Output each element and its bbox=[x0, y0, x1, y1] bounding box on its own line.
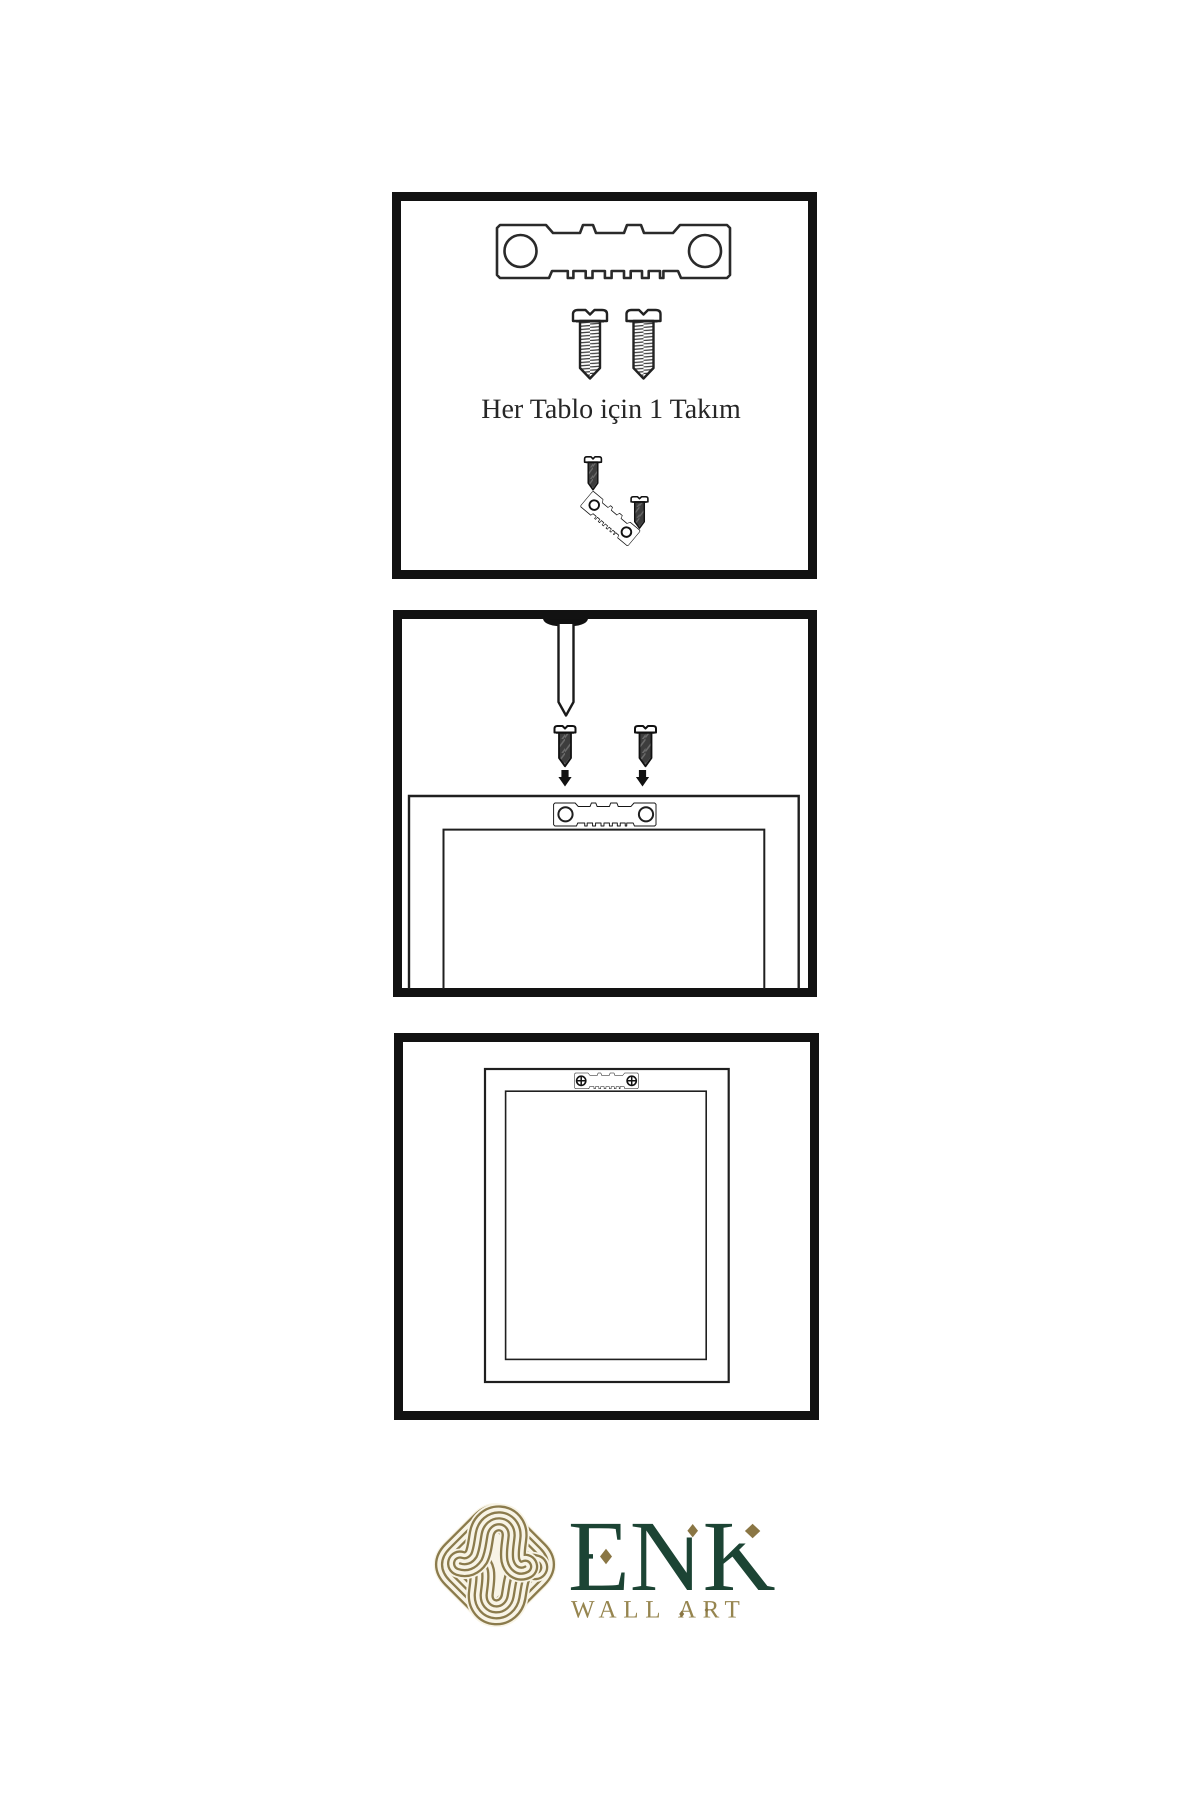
svg-text:Her Tablo için 1 Takım: Her Tablo için 1 Takım bbox=[481, 394, 741, 425]
svg-text:WALL ART: WALL ART bbox=[571, 1597, 746, 1624]
